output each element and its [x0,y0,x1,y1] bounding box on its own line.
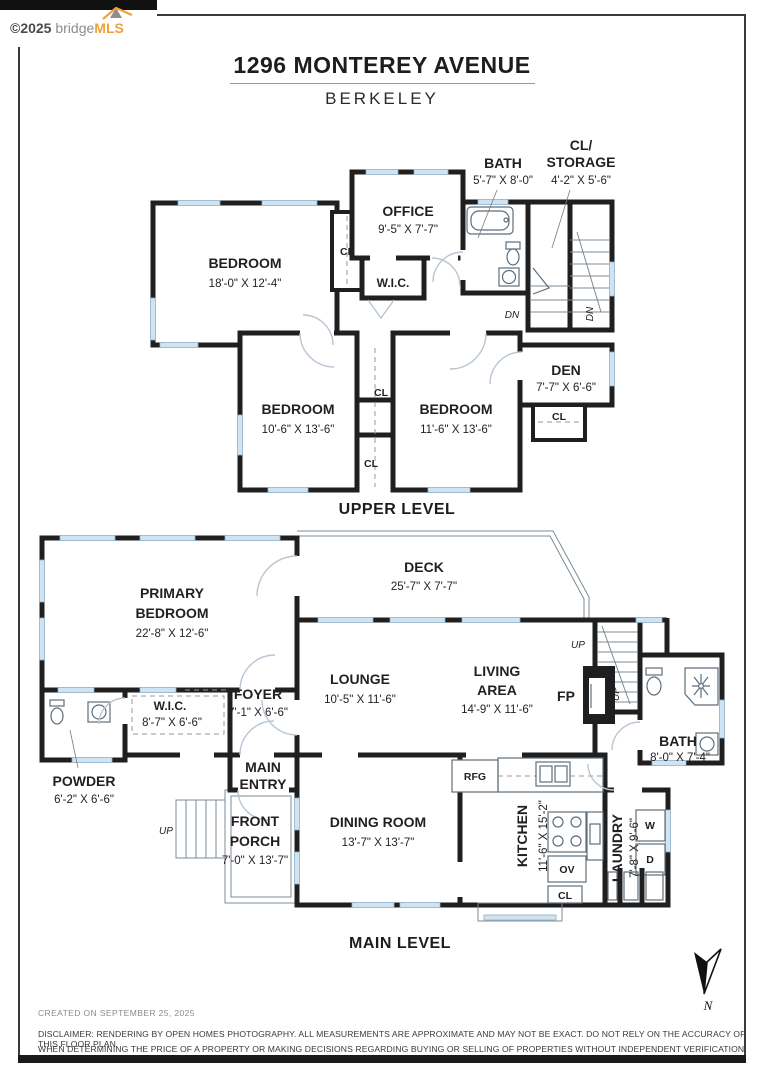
dims-upper-den: 7'-7" X 6'-6" [536,382,596,394]
label-primary-2: BEDROOM [135,605,208,621]
created-date-text: CREATED ON SEPTEMBER 25, 2025 [38,1008,195,1018]
label-upper-den: DEN [551,362,581,378]
label-living-2: AREA [477,682,517,698]
dims-upper-cl-storage: 4'-2" X 5'-6" [551,175,611,187]
greatroom-walls [297,620,595,755]
label-porch-2: PORCH [230,833,281,849]
deck-outline-inner [297,536,584,618]
label-rfg: RFG [464,771,486,783]
label-ov: OV [559,864,574,876]
door-gap [370,256,396,261]
north-compass: N [694,949,721,1013]
window [72,758,112,763]
compass-needle-outline [704,949,721,994]
window [390,618,445,623]
label-dining: DINING ROOM [330,814,426,830]
door-gap [466,753,522,758]
door-gap [638,720,643,750]
window [295,852,300,884]
dims-main-bath: 8'-0" X 7'-4" [650,752,710,764]
label-washer: W [645,820,655,832]
stove-icon [548,812,586,852]
label-main-bath: BATH [659,733,697,749]
window [40,560,45,602]
label-lounge: LOUNGE [330,671,390,687]
window [462,618,520,623]
label-kitchen: KITCHEN [514,805,530,867]
window [225,536,280,541]
dims-kitchen: 11'-6" X 15'-2" [538,800,550,872]
dims-upper-bath: 5'-7" X 8'-0" [473,175,533,187]
window [352,903,394,908]
upper-toilet-icon [506,242,520,265]
dims-laundry: 7'-8" X 9'-6" [629,818,641,878]
label-upper-bedroom-right: BEDROOM [419,401,492,417]
dims-upper-bedroom-large: 18'-0" X 12'-4" [209,278,282,290]
label-entry-2: ENTRY [240,776,288,792]
label-main-wic: W.I.C. [154,699,187,713]
dims-deck: 25'-7" X 7'-7" [391,581,457,593]
label-cl-nook: CL [340,246,355,258]
window [268,488,308,493]
window [400,903,440,908]
window [140,536,195,541]
shower-icon [685,668,718,705]
window [40,618,45,660]
dims-upper-bedroom-left: 10'-6" X 13'-6" [262,424,335,436]
upper-level-plan: BEDROOM 18'-0" X 12'-4" OFFICE 9'-5" X 7… [151,137,616,518]
dining-walls [297,755,460,905]
door-arc [432,258,460,286]
upper-sink-icon [499,268,519,286]
window [295,798,300,830]
label-upper-bath: BATH [484,155,522,171]
floorplan-drawing: BEDROOM 18'-0" X 12'-4" OFFICE 9'-5" X 7… [0,0,764,1080]
door-gap [300,331,334,336]
label-living-1: LIVING [474,663,521,679]
window [140,688,176,693]
door-gap [295,700,300,735]
label-up-stairs: UP [571,640,585,651]
main-level-caption: MAIN LEVEL [349,935,451,952]
dims-powder: 6'-2" X 6'-6" [54,794,114,806]
label-dryer: D [646,854,654,866]
kitchen-sink-icon [536,762,570,786]
upper-bathtub-icon [467,207,513,234]
door-gap [303,343,333,348]
dims-living: 14'-9" X 11'-6" [461,704,533,716]
dims-upper-office: 9'-5" X 7'-7" [378,224,438,236]
window [720,700,725,738]
door-gap [295,556,300,596]
dims-foyer: 7'-1" X 6'-6" [228,707,288,719]
window [60,536,115,541]
powder-toilet-icon [50,700,64,724]
door-gap [614,788,642,793]
label-cl-kitchen: CL [558,890,573,902]
label-upper-cl-storage-1: CL/ [570,137,593,153]
label-cl-den: CL [552,411,567,423]
dims-primary: 22'-8" X 12'-6" [136,628,209,640]
porch-steps [176,800,225,858]
label-upper-wic: W.I.C. [377,276,410,290]
label-deck: DECK [404,559,444,575]
upper-bedroom-large-walls [153,203,337,345]
floorplan-page: ©2025 bridgeMLS 1296 MONTEREY AVENUE BER… [0,0,764,1080]
window [636,618,662,623]
label-upper-bedroom-large: BEDROOM [208,255,281,271]
window [318,618,373,623]
dims-porch: 7'-0" X 13'-7" [222,855,288,867]
label-cl-between-bottom: CL [364,458,379,470]
label-dn-1: DN [505,310,520,321]
label-porch-1: FRONT [231,813,280,829]
label-foyer: FOYER [234,686,282,702]
door-gap [518,352,523,380]
label-upper-cl-storage-2: STORAGE [547,154,616,170]
main-bath-toilet-icon [646,668,662,695]
window [58,688,94,693]
door-gap [450,331,486,336]
window [666,810,671,852]
dims-upper-bedroom-right: 11'-6" X 13'-6" [420,424,492,436]
door-gap [180,753,214,758]
kitchen-island-sink-icon [587,812,603,860]
door-gap [123,698,128,724]
window [160,343,198,348]
label-upper-bedroom-left: BEDROOM [261,401,334,417]
label-entry-1: MAIN [245,759,281,775]
label-primary-1: PRIMARY [140,585,205,601]
wic-bifold-door [368,300,394,318]
label-up-porch: UP [159,826,173,837]
window [428,488,470,493]
window [238,415,243,455]
window [610,352,615,386]
window [484,915,556,920]
door-gap [461,250,466,280]
label-dn-2: DN [585,306,596,321]
upper-level-caption: UPPER LEVEL [339,501,456,518]
window [178,201,220,206]
label-fp: FP [557,688,575,704]
label-up-stairs2: UP [611,687,622,701]
door-gap [458,862,463,897]
label-laundry: LAUNDRY [609,813,625,882]
label-upper-office: OFFICE [382,203,433,219]
door-gap [322,753,358,758]
dims-dining: 13'-7" X 13'-7" [342,837,415,849]
label-cl-between-top: CL [374,387,389,399]
window [262,201,317,206]
label-powder: POWDER [53,773,116,789]
window [366,170,398,175]
window [414,170,448,175]
dims-main-wic: 8'-7" X 6'-6" [142,717,202,729]
door-gap [240,753,274,758]
door-arc [612,722,640,750]
compass-north-label: N [703,998,714,1013]
window [151,298,156,340]
dims-lounge: 10'-5" X 11'-6" [324,694,396,706]
disclaimer-line2: WHEN DETERMINING THE PRICE OF A PROPERTY… [38,1044,747,1054]
window [610,262,615,296]
main-level-plan: PRIMARY BEDROOM 22'-8" X 12'-6" DECK 25'… [40,531,725,952]
